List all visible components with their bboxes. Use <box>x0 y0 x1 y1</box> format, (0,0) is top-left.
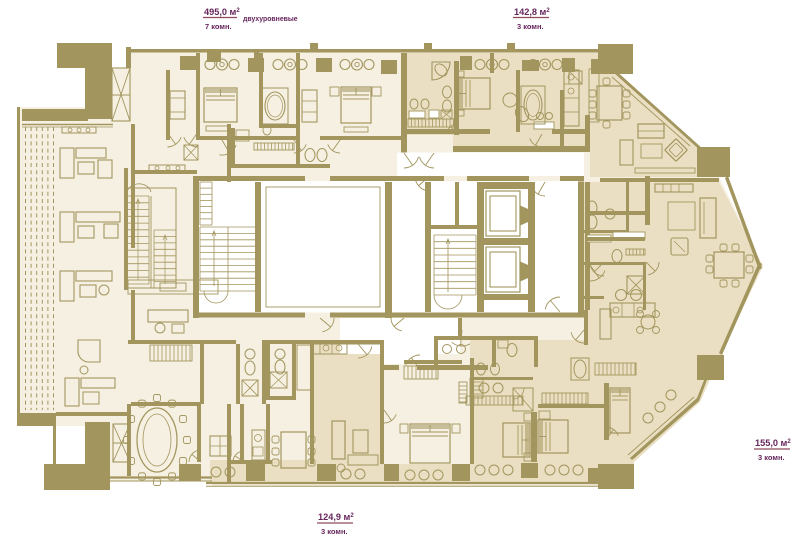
svg-text:3 комн.: 3 комн. <box>321 527 348 536</box>
svg-text:495,0 м2: 495,0 м2 <box>204 7 240 17</box>
svg-text:двухуровневые: двухуровневые <box>243 16 298 23</box>
svg-text:155,0 м2: 155,0 м2 <box>755 438 791 448</box>
svg-text:124,9 м2: 124,9 м2 <box>318 512 354 522</box>
svg-text:3 комн.: 3 комн. <box>517 22 544 31</box>
svg-text:7 комн.: 7 комн. <box>205 22 232 31</box>
svg-text:142,8 м2: 142,8 м2 <box>514 7 550 17</box>
svg-text:3 комн.: 3 комн. <box>758 453 785 462</box>
